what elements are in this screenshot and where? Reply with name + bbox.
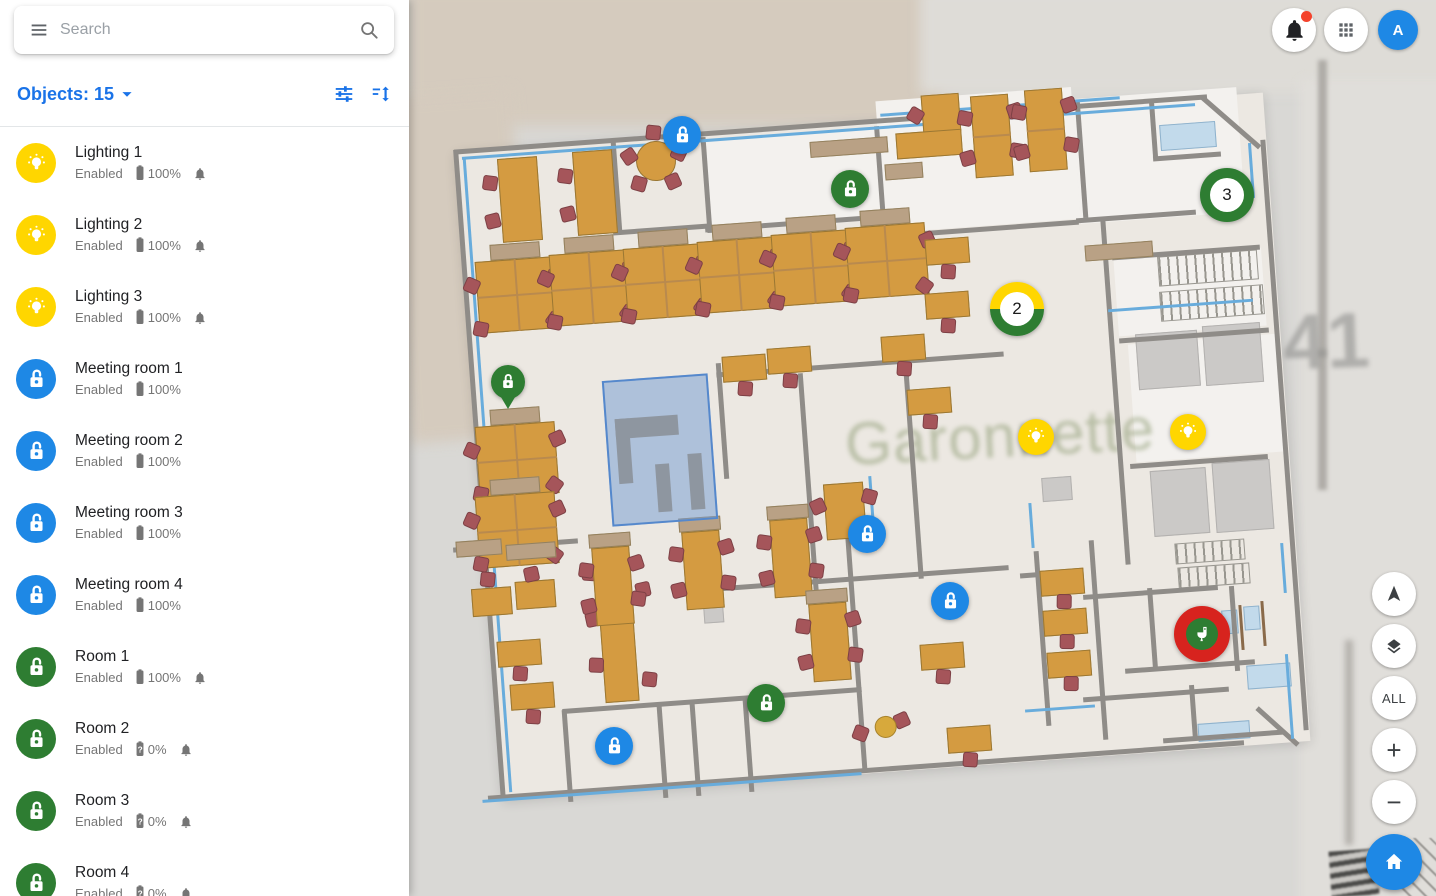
lightbulb-icon: [16, 143, 56, 183]
list-item-room-1[interactable]: Room 1Enabled100%: [0, 631, 409, 703]
lock-open-icon: [16, 503, 56, 543]
object-status: Enabled: [75, 238, 123, 253]
battery-level: 100%: [148, 598, 181, 613]
battery-level: 100%: [148, 382, 181, 397]
notifications-button[interactable]: [1272, 8, 1316, 52]
battery-level: 100%: [148, 310, 181, 325]
battery-icon: [135, 309, 145, 327]
notification-badge: [1301, 11, 1312, 22]
object-name: Lighting 3: [75, 288, 207, 306]
map-marker-pin-lock[interactable]: [491, 365, 525, 399]
map-marker-lock-1[interactable]: [663, 116, 701, 154]
layers-button[interactable]: [1372, 624, 1416, 668]
list-item-meeting-room-1[interactable]: Meeting room 1Enabled100%: [0, 343, 409, 415]
map-marker-lock-6[interactable]: [595, 727, 633, 765]
object-name: Meeting room 2: [75, 432, 183, 450]
filter-icon[interactable]: [333, 83, 355, 105]
battery-icon: ?: [135, 813, 145, 831]
object-status: Enabled: [75, 310, 123, 325]
notification-bell-icon: [193, 239, 207, 253]
list-item-lighting-1[interactable]: Lighting 1Enabled100%: [0, 127, 409, 199]
notification-bell-icon: [179, 815, 193, 829]
object-name: Meeting room 3: [75, 504, 183, 522]
object-status: Enabled: [75, 886, 123, 896]
battery-level: 0%: [148, 742, 167, 757]
svg-text:?: ?: [137, 889, 142, 896]
object-name: Lighting 2: [75, 216, 207, 234]
zoom-out-button[interactable]: −: [1372, 780, 1416, 824]
notification-bell-icon: [179, 887, 193, 896]
search-bar[interactable]: [14, 6, 394, 54]
battery-icon: [135, 165, 145, 183]
battery-icon: [135, 381, 145, 399]
list-item-lighting-2[interactable]: Lighting 2Enabled100%: [0, 199, 409, 271]
search-icon[interactable]: [358, 19, 380, 41]
object-name: Meeting room 4: [75, 576, 183, 594]
object-status: Enabled: [75, 814, 123, 829]
object-status: Enabled: [75, 598, 123, 613]
battery-icon: [135, 597, 145, 615]
svg-text:?: ?: [137, 817, 142, 826]
battery-icon: [135, 237, 145, 255]
list-item-meeting-room-2[interactable]: Meeting room 2Enabled100%: [0, 415, 409, 487]
map-marker-light-1[interactable]: [1018, 419, 1054, 455]
layers-icon: [1383, 635, 1405, 657]
battery-level: 0%: [148, 814, 167, 829]
map-marker-lock-2[interactable]: [831, 170, 869, 208]
battery-icon: [135, 525, 145, 543]
sidebar: Objects: 15 Lighting 1Enabled100%Lightin…: [0, 0, 409, 896]
map-marker-light-2[interactable]: [1170, 414, 1206, 450]
notification-bell-icon: [193, 671, 207, 685]
notification-bell-icon: [193, 167, 207, 181]
lock-open-icon: [16, 791, 56, 831]
object-name: Room 1: [75, 648, 207, 666]
list-item-lighting-3[interactable]: Lighting 3Enabled100%: [0, 271, 409, 343]
map-marker-cluster-3[interactable]: 3: [1200, 168, 1254, 222]
apps-grid-icon: [1336, 20, 1356, 40]
object-name: Room 3: [75, 792, 193, 810]
battery-level: 100%: [148, 670, 181, 685]
object-status: Enabled: [75, 742, 123, 757]
object-list: Lighting 1Enabled100%Lighting 2Enabled10…: [0, 127, 409, 896]
lock-open-icon: [16, 431, 56, 471]
list-item-room-4[interactable]: Room 4Enabled?0%: [0, 847, 409, 896]
battery-icon: [135, 669, 145, 687]
lightbulb-icon: [16, 215, 56, 255]
lightbulb-icon: [16, 287, 56, 327]
battery-level: 100%: [148, 454, 181, 469]
objects-count-dropdown[interactable]: Objects: 15: [17, 83, 138, 105]
list-item-meeting-room-4[interactable]: Meeting room 4Enabled100%: [0, 559, 409, 631]
show-all-button[interactable]: ALL: [1372, 676, 1416, 720]
svg-text:?: ?: [137, 745, 142, 754]
map-marker-lock-4[interactable]: [931, 582, 969, 620]
cluster-count: 2: [1000, 292, 1034, 326]
lock-open-icon: [16, 647, 56, 687]
toilet-icon: [1186, 618, 1218, 650]
battery-icon: ?: [135, 741, 145, 759]
notification-bell-icon: [179, 743, 193, 757]
lock-open-icon: [16, 719, 56, 759]
list-item-room-3[interactable]: Room 3Enabled?0%: [0, 775, 409, 847]
object-status: Enabled: [75, 166, 123, 181]
navigation-arrow-icon: [1383, 583, 1405, 605]
object-status: Enabled: [75, 382, 123, 397]
map-marker-toilet-1[interactable]: [1174, 606, 1230, 662]
battery-level: 100%: [148, 238, 181, 253]
lock-open-icon: [16, 359, 56, 399]
sort-icon[interactable]: [370, 83, 392, 105]
home-icon: [1381, 849, 1407, 875]
list-item-room-2[interactable]: Room 2Enabled?0%: [0, 703, 409, 775]
map-marker-cluster-2[interactable]: 2: [990, 282, 1044, 336]
account-avatar[interactable]: A: [1378, 10, 1418, 50]
apps-grid-button[interactable]: [1324, 8, 1368, 52]
battery-level: 0%: [148, 886, 167, 896]
battery-level: 100%: [148, 166, 181, 181]
lock-open-icon: [16, 863, 56, 896]
notification-bell-icon: [193, 311, 207, 325]
menu-icon[interactable]: [28, 19, 50, 41]
object-status: Enabled: [75, 454, 123, 469]
object-name: Lighting 1: [75, 144, 207, 162]
list-item-meeting-room-3[interactable]: Meeting room 3Enabled100%: [0, 487, 409, 559]
object-status: Enabled: [75, 526, 123, 541]
home-button[interactable]: [1366, 834, 1422, 890]
battery-icon: ?: [135, 885, 145, 896]
battery-icon: [135, 453, 145, 471]
map-marker-lock-5[interactable]: [747, 684, 785, 722]
object-name: Meeting room 1: [75, 360, 183, 378]
cluster-count: 3: [1210, 178, 1244, 212]
object-name: Room 2: [75, 720, 193, 738]
object-status: Enabled: [75, 670, 123, 685]
map-marker-lock-3[interactable]: [848, 515, 886, 553]
zoom-in-button[interactable]: +: [1372, 728, 1416, 772]
chevron-down-icon: [116, 83, 138, 105]
objects-count-label: Objects: 15: [17, 84, 114, 105]
battery-level: 100%: [148, 526, 181, 541]
compass-button[interactable]: [1372, 572, 1416, 616]
lock-open-icon: [16, 575, 56, 615]
search-input[interactable]: [54, 21, 354, 39]
object-name: Room 4: [75, 864, 193, 882]
